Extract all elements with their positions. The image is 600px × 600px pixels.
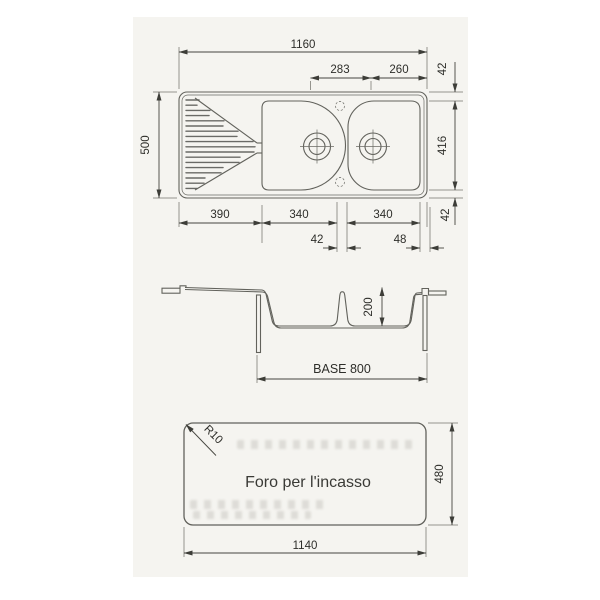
left-leg: [257, 295, 261, 353]
right-leg: [423, 296, 427, 351]
dim-right-margin-bottom: 42: [440, 209, 452, 222]
right-mounting-clip: [429, 291, 447, 295]
cutout-caption: Foro per l'incasso: [245, 474, 371, 491]
dim-divider-gap: 42: [311, 234, 324, 246]
section-view: 200 BASE 800: [162, 286, 446, 383]
dim-right-margin-top: 42: [437, 63, 449, 76]
dim-base-label: BASE 800: [313, 362, 371, 376]
page: 1160 283 260 42 416 42 500 390 340 340 4…: [0, 0, 600, 600]
left-mounting-clip: [162, 288, 180, 293]
bowl2-drain: [356, 130, 390, 164]
sink-outer-outline: [179, 92, 427, 198]
bowl1-drain: [300, 130, 334, 164]
dim-overall-height: 500: [140, 135, 152, 154]
tap-hole: [336, 102, 345, 111]
section-inner-profile: [185, 288, 422, 327]
dim-corner-radius: R10: [201, 423, 224, 446]
dim-drainer-width: 390: [210, 209, 229, 221]
drainboard-funnel-outline: [195, 98, 262, 190]
dim-bowl-height: 416: [437, 136, 449, 155]
dim-overall-width: 1160: [291, 39, 316, 51]
dim-bowl2-width: 340: [373, 209, 392, 221]
right-rim-edge: [422, 289, 429, 295]
sink-inner-outline: [182, 95, 424, 195]
bowl2-outline: [348, 101, 420, 190]
dim-bowl1-width: 340: [289, 209, 308, 221]
dim-tap-span-right: 260: [389, 64, 408, 76]
dim-bowl-depth: 200: [363, 297, 375, 316]
sink-technical-drawing: 1160 283 260 42 416 42 500 390 340 340 4…: [133, 17, 468, 577]
dim-right-gap: 48: [394, 234, 407, 246]
dim-tap-span-left: 283: [330, 64, 349, 76]
dim-cutout-height: 480: [434, 464, 446, 483]
top-view: 1160 283 260 42 416 42 500 390 340 340 4…: [140, 39, 463, 252]
dim-cutout-width: 1140: [293, 540, 318, 552]
tap-hole: [336, 178, 345, 187]
section-outer-profile: [185, 290, 422, 329]
cutout-view: R10 Foro per l'incasso 480 1140: [184, 423, 458, 557]
